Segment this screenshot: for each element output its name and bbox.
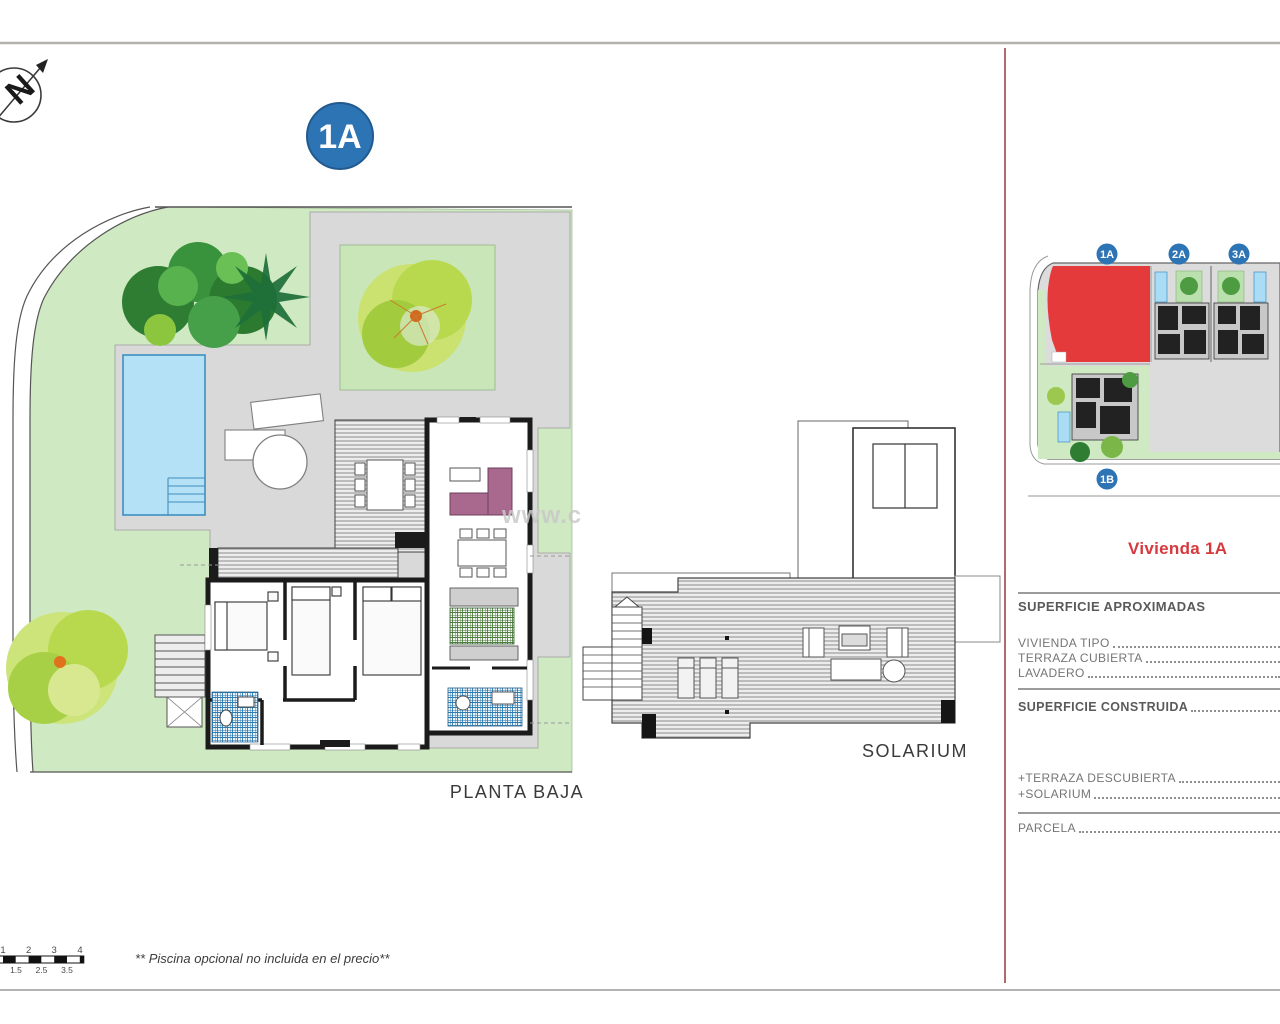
main-plan-badge: 1A: [307, 103, 373, 169]
scale-top-4: 4: [77, 945, 82, 956]
row-terraza-descubierta: +TERRAZA DESCUBIERTA: [1018, 771, 1280, 785]
scale-bot-15: 1.5: [10, 965, 22, 975]
kitchen: [450, 588, 518, 660]
pool-footnote: ** Piscina opcional no incluida en el pr…: [135, 951, 390, 966]
scale-bot-35: 3.5: [61, 965, 73, 975]
row-solarium: +SOLARIUM: [1018, 787, 1280, 801]
scale-bot-25: 2.5: [36, 965, 48, 975]
bedroom-block: [205, 580, 427, 750]
dotted-leader: [1146, 661, 1280, 663]
row-label: VIVIENDA TIPO: [1018, 636, 1110, 650]
rule-top: [1018, 592, 1280, 594]
main-badge-label: 1A: [318, 118, 361, 156]
north-compass-icon: N: [0, 59, 48, 132]
row-label: PARCELA: [1018, 821, 1076, 835]
approx-heading: SUPERFICIE APROXIMADAS: [1018, 599, 1205, 614]
bed-3: [363, 587, 421, 675]
scale-bar: 1 2 3 4 1.5 2.5 3.5: [0, 945, 84, 975]
swimming-pool: [123, 355, 205, 515]
main-site-plan: [6, 207, 572, 772]
rule-middle: [1018, 688, 1280, 690]
panel-title: Vivienda 1A: [1128, 539, 1227, 559]
row-label: +TERRAZA DESCUBIERTA: [1018, 771, 1176, 785]
dotted-leader: [1191, 710, 1280, 712]
dining-set: [458, 529, 506, 577]
dotted-leader: [1179, 781, 1280, 783]
row-label: SUPERFICIE CONSTRUIDA: [1018, 700, 1188, 714]
info-panel: Vivienda 1A SUPERFICIE APROXIMADAS VIVIE…: [1005, 0, 1280, 1024]
solarium-plan: [583, 421, 1000, 738]
palm-tree: [222, 253, 310, 341]
scale-top-2: 2: [26, 945, 31, 956]
row-label: TERRAZA CUBIERTA: [1018, 651, 1143, 665]
scale-bar-segments: [0, 956, 84, 963]
plan-sheet: N 1A: [0, 0, 1280, 1024]
row-label: LAVADERO: [1018, 666, 1085, 680]
dotted-leader: [1088, 676, 1280, 678]
planta-baja-label: PLANTA BAJA: [450, 782, 584, 802]
bathroom-right: [448, 688, 522, 726]
scale-top-3: 3: [52, 945, 57, 956]
row-vivienda-tipo: VIVIENDA TIPO: [1018, 636, 1280, 650]
row-lavadero: LAVADERO: [1018, 666, 1280, 680]
bathroom-left: [212, 692, 258, 742]
watermark: www.c: [501, 502, 582, 529]
sun-loungers: [678, 658, 738, 698]
dotted-leader: [1094, 797, 1280, 799]
deck-strip: [218, 548, 398, 582]
scale-top-1: 1: [0, 945, 5, 956]
solarium-stairs: [583, 597, 642, 700]
row-superficie-construida: SUPERFICIE CONSTRUIDA: [1018, 700, 1280, 714]
dotted-leader: [1079, 831, 1280, 833]
solarium-deck: [612, 578, 955, 738]
living-block: [427, 417, 533, 733]
rule-bottom: [1018, 812, 1280, 814]
deck-dining-set: [355, 460, 415, 510]
row-parcela: PARCELA: [1018, 821, 1280, 835]
dotted-leader: [1113, 646, 1280, 648]
row-label: +SOLARIUM: [1018, 787, 1091, 801]
row-terraza-cubierta: TERRAZA CUBIERTA: [1018, 651, 1280, 665]
solarium-label: SOLARIUM: [862, 741, 968, 761]
